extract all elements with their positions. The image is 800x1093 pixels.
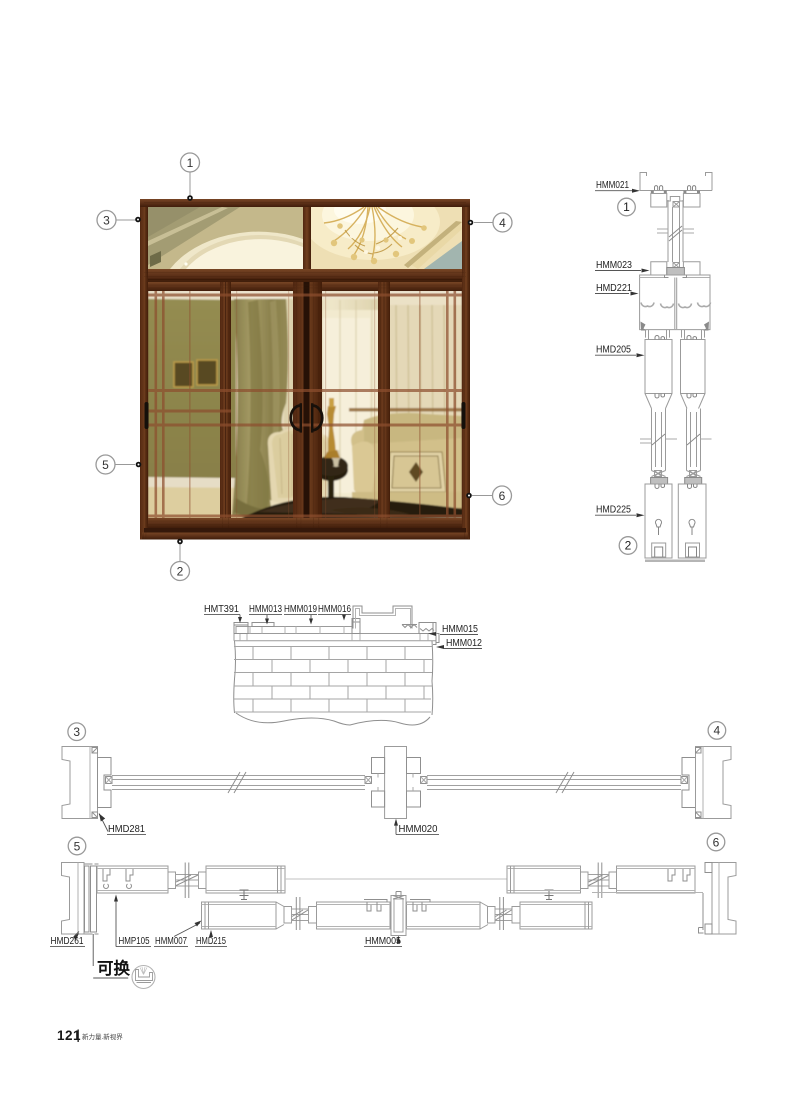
svg-text:HMT391: HMT391 <box>204 604 239 615</box>
svg-text:1: 1 <box>187 156 194 170</box>
svg-text:HMD221: HMD221 <box>596 283 632 294</box>
svg-text:HMM023: HMM023 <box>596 260 632 271</box>
svg-text:5: 5 <box>74 839 81 853</box>
svg-text:1: 1 <box>623 200 630 214</box>
svg-text:HMM013: HMM013 <box>249 604 282 615</box>
svg-text:HMM005: HMM005 <box>365 936 401 947</box>
svg-text:HMD261: HMD261 <box>51 936 84 947</box>
svg-text:HMD281: HMD281 <box>108 824 145 835</box>
svg-text:HMM007: HMM007 <box>155 936 187 947</box>
svg-text:HMD215: HMD215 <box>196 936 226 947</box>
svg-text:3: 3 <box>103 214 110 228</box>
svg-text:121: 121 <box>57 1028 81 1043</box>
svg-text:3: 3 <box>73 725 80 739</box>
svg-text:2: 2 <box>625 539 632 553</box>
svg-text:HMP105: HMP105 <box>119 936 150 947</box>
svg-text:HMM015: HMM015 <box>442 624 478 635</box>
svg-text:6: 6 <box>499 489 506 503</box>
svg-text:新力量.新视界: 新力量.新视界 <box>82 1032 123 1041</box>
svg-text:可换: 可换 <box>97 958 131 978</box>
svg-text:4: 4 <box>499 216 506 230</box>
svg-text:5: 5 <box>102 458 109 472</box>
svg-text:4: 4 <box>714 724 721 738</box>
svg-text:6: 6 <box>713 835 720 849</box>
svg-text:HMD225: HMD225 <box>596 505 631 516</box>
svg-text:HMM020: HMM020 <box>399 824 438 835</box>
svg-text:HMM012: HMM012 <box>446 638 482 649</box>
svg-text:2: 2 <box>177 565 184 579</box>
svg-text:HMM019: HMM019 <box>284 604 317 615</box>
svg-text:HMM021: HMM021 <box>596 180 629 191</box>
svg-text:HMD205: HMD205 <box>596 345 631 356</box>
svg-text:HMM016: HMM016 <box>318 604 351 615</box>
